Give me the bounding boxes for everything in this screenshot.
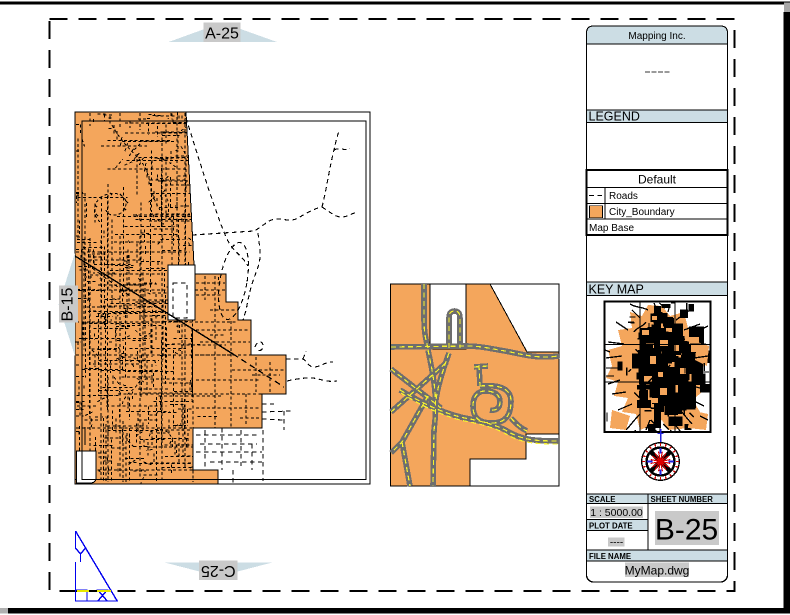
svg-text:SHEET NUMBER: SHEET NUMBER: [651, 495, 714, 504]
svg-text:City_Boundary: City_Boundary: [609, 207, 675, 218]
svg-text:FILE NAME: FILE NAME: [589, 552, 631, 561]
svg-text:SCALE: SCALE: [589, 495, 615, 504]
svg-text:MyMap.dwg: MyMap.dwg: [625, 564, 690, 578]
svg-text:Default: Default: [638, 173, 677, 187]
svg-text:KEY MAP: KEY MAP: [589, 283, 644, 297]
svg-text:----: ----: [610, 538, 623, 549]
svg-text:1 : 5000.00: 1 : 5000.00: [590, 507, 643, 519]
svg-text:B-25: B-25: [655, 514, 718, 547]
svg-text:B-15: B-15: [60, 288, 77, 322]
svg-text:Roads: Roads: [609, 191, 638, 202]
svg-text:C-25: C-25: [201, 562, 236, 579]
svg-text:A-25: A-25: [205, 26, 239, 43]
svg-text:LEGEND: LEGEND: [589, 110, 640, 124]
svg-text:PLOT DATE: PLOT DATE: [589, 521, 633, 530]
svg-text:Map Base: Map Base: [589, 223, 634, 234]
svg-text:Mapping Inc.: Mapping Inc.: [628, 31, 685, 42]
